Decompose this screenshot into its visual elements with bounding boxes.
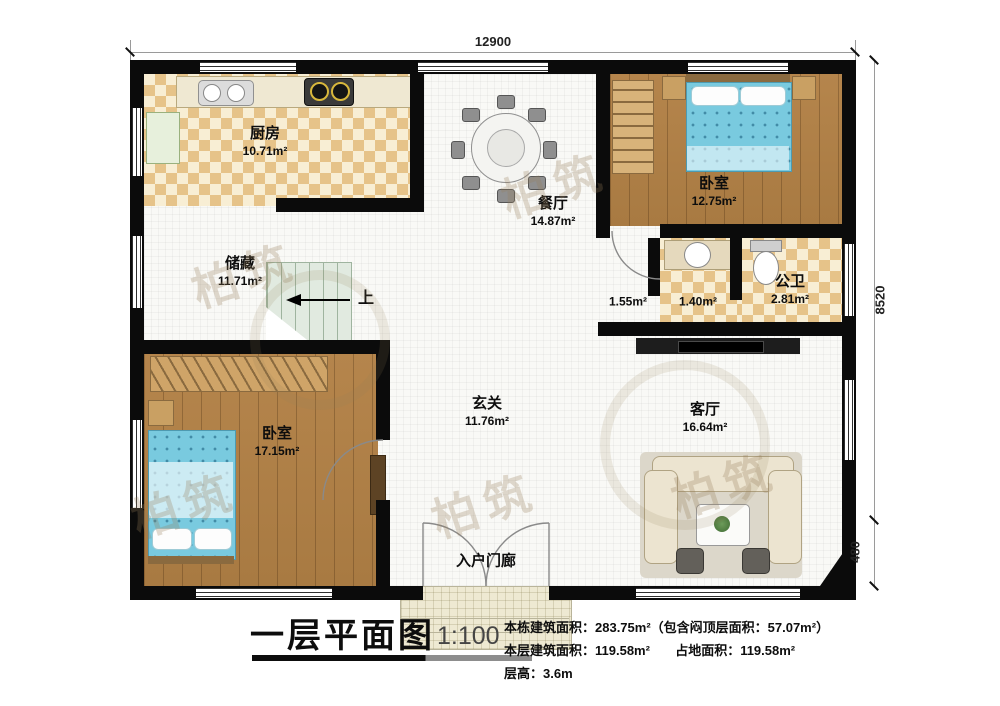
stairs-up-label: 上 xyxy=(358,289,374,309)
dining-name: 餐厅 xyxy=(531,195,576,214)
kitchen-label: 厨房 10.71m² xyxy=(243,125,288,159)
dining-area: 14.87m² xyxy=(531,214,576,229)
bathroom-name: 公卫 xyxy=(771,273,809,292)
bedroom-bottom-label: 卧室 17.15m² xyxy=(255,425,300,459)
plan-scale: 1:100 xyxy=(437,622,500,651)
bedroom-top-name: 卧室 xyxy=(692,175,737,194)
kitchen-name: 厨房 xyxy=(243,125,288,144)
dimension-top-width: 12900 xyxy=(475,34,511,49)
plan-info: 本栋建筑面积：283.75m²（包含闷顶层面积：57.07m²） 本层建筑面积：… xyxy=(504,616,829,685)
storage-label: 储藏 11.71m² xyxy=(218,255,262,289)
storage-name: 储藏 xyxy=(218,255,262,274)
porch-label: 入户门廊 xyxy=(456,553,516,572)
bedroom-top-label: 卧室 12.75m² xyxy=(692,175,737,209)
door-arcs-overlay xyxy=(130,60,856,600)
building-area-line: 本栋建筑面积：283.75m²（包含闷顶层面积：57.07m²） xyxy=(504,616,829,639)
living-label: 客厅 16.64m² xyxy=(683,401,728,435)
dimension-right-step: 480 xyxy=(848,541,863,563)
floor-area-line: 本层建筑面积：119.58m² 占地面积：119.58m² xyxy=(504,639,829,662)
bedroom-top-area: 12.75m² xyxy=(692,194,737,209)
dining-label: 餐厅 14.87m² xyxy=(531,195,576,229)
foyer-area: 11.76m² xyxy=(465,414,509,429)
bath-vestibule-label: 1.40m² xyxy=(679,295,717,310)
bedroom-bottom-area: 17.15m² xyxy=(255,444,300,459)
bedroom-bottom-name: 卧室 xyxy=(255,425,300,444)
bedroom-door-arc xyxy=(323,440,383,500)
dimension-line-right xyxy=(874,60,875,586)
bath-vestibule-area: 1.40m² xyxy=(679,295,717,310)
bathroom-area: 2.81m² xyxy=(771,292,809,307)
bathroom-label: 公卫 2.81m² xyxy=(771,273,809,307)
storage-area: 11.71m² xyxy=(218,274,262,289)
foyer-name: 玄关 xyxy=(465,395,509,414)
floor-area: 本层建筑面积：119.58m² xyxy=(504,643,650,658)
corridor-label: 1.55m² xyxy=(609,295,647,310)
dimension-right-height: 8520 xyxy=(873,286,888,315)
living-name: 客厅 xyxy=(683,401,728,420)
corridor-area: 1.55m² xyxy=(609,295,647,310)
dimension-line-top xyxy=(130,52,856,53)
foyer-label: 玄关 11.76m² xyxy=(465,395,509,429)
bath-corridor-door-arc xyxy=(612,231,660,279)
living-area: 16.64m² xyxy=(683,420,728,435)
kitchen-area: 10.71m² xyxy=(243,144,288,159)
floor-height-line: 层高：3.6m xyxy=(504,662,829,685)
plan-title: 一层平面图 xyxy=(250,608,435,657)
footprint-area: 占地面积：119.58m² xyxy=(675,643,795,658)
title-underline xyxy=(252,655,532,661)
porch-name: 入户门廊 xyxy=(456,553,516,572)
